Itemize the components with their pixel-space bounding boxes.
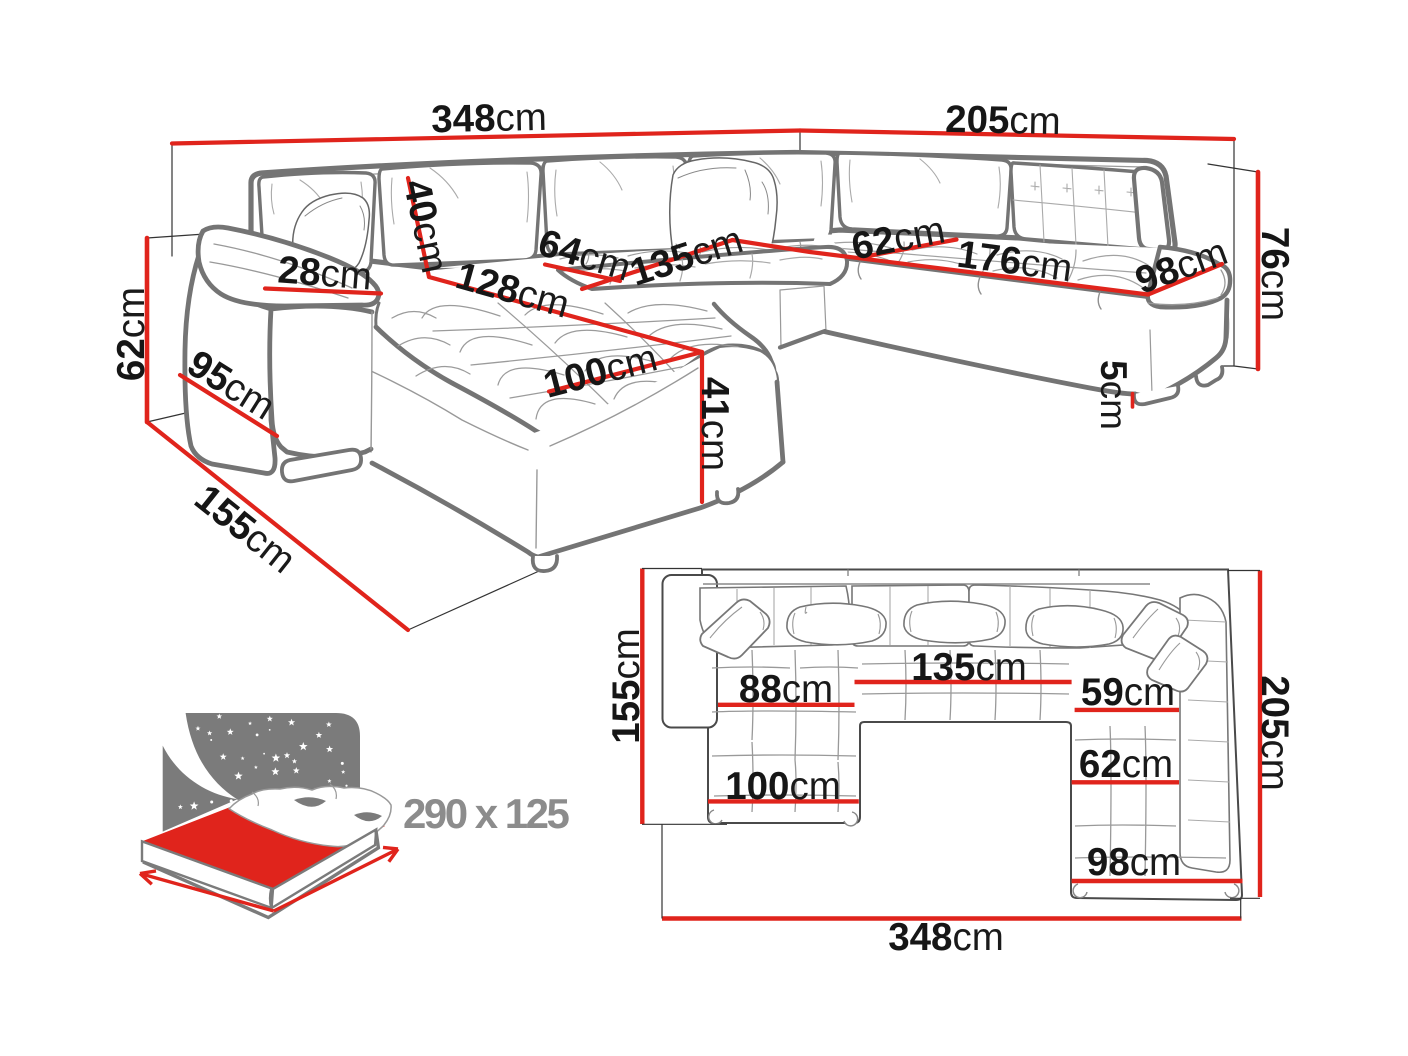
svg-text:88cm: 88cm: [739, 668, 833, 711]
svg-text:5cm: 5cm: [1093, 360, 1134, 430]
svg-text:100cm: 100cm: [725, 765, 841, 808]
svg-text:348cm: 348cm: [431, 96, 547, 141]
svg-text:135cm: 135cm: [911, 646, 1027, 689]
svg-text:205cm: 205cm: [1253, 675, 1296, 791]
svg-text:290 x 125: 290 x 125: [403, 790, 569, 837]
svg-text:41cm: 41cm: [693, 377, 736, 471]
svg-text:76cm: 76cm: [1253, 227, 1296, 321]
svg-text:28cm: 28cm: [276, 248, 373, 298]
svg-text:205cm: 205cm: [945, 98, 1061, 143]
svg-text:59cm: 59cm: [1081, 671, 1175, 714]
svg-text:155cm: 155cm: [186, 476, 303, 582]
svg-text:62cm: 62cm: [110, 287, 153, 381]
svg-text:62cm: 62cm: [1079, 743, 1173, 786]
svg-text:155cm: 155cm: [605, 628, 648, 744]
svg-text:348cm: 348cm: [888, 916, 1004, 959]
svg-text:98cm: 98cm: [1087, 841, 1181, 884]
